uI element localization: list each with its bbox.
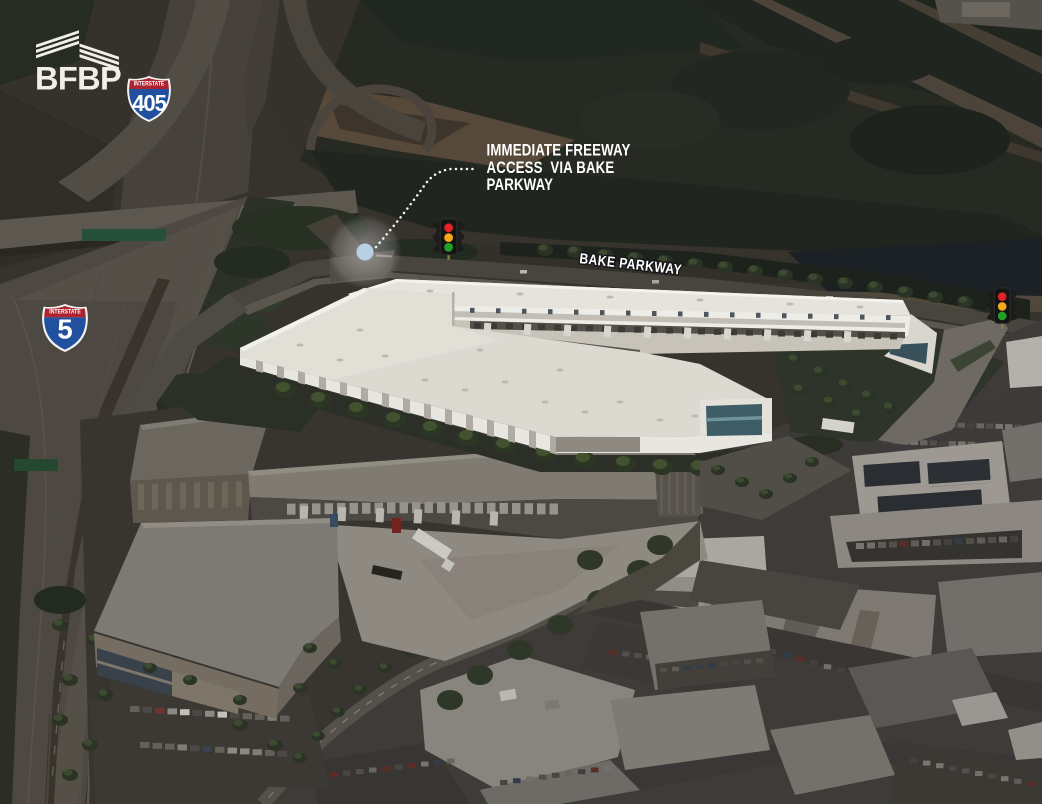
svg-text:5: 5 bbox=[57, 314, 72, 345]
svg-text:405: 405 bbox=[132, 89, 167, 116]
svg-text:ACCESS VIA BAKE: ACCESS VIA BAKE bbox=[487, 158, 615, 177]
svg-text:BFBP: BFBP bbox=[35, 61, 121, 97]
svg-text:PARKWAY: PARKWAY bbox=[487, 176, 554, 195]
svg-text:IMMEDIATE FREEWAY: IMMEDIATE FREEWAY bbox=[487, 141, 631, 160]
svg-text:INTERSTATE: INTERSTATE bbox=[134, 81, 165, 88]
